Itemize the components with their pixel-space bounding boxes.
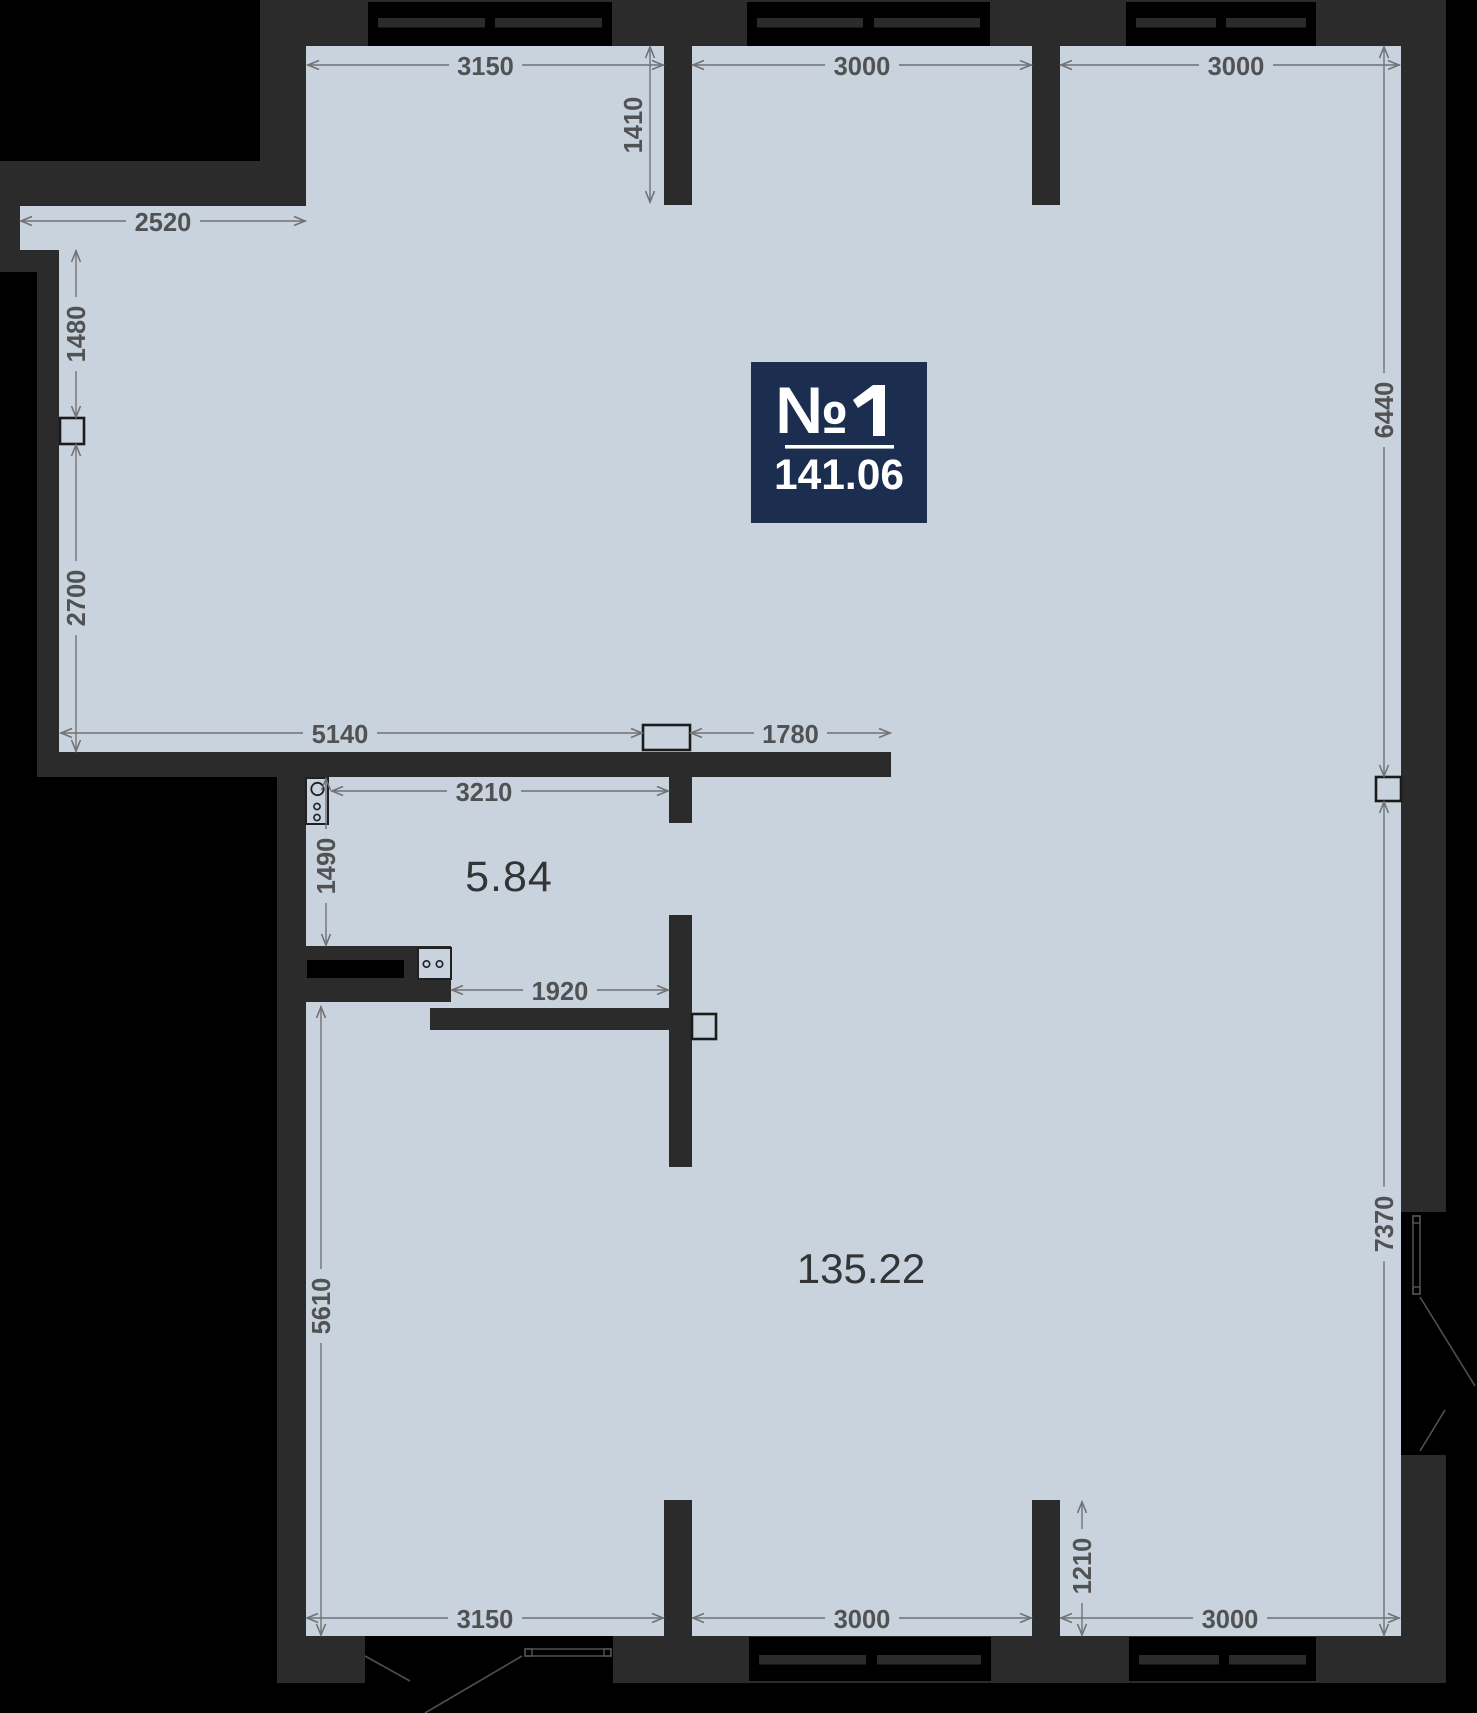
svg-text:3150: 3150 bbox=[457, 53, 514, 81]
svg-text:1920: 1920 bbox=[532, 978, 589, 1006]
svg-text:5610: 5610 bbox=[308, 1278, 336, 1335]
svg-text:5.84: 5.84 bbox=[465, 853, 553, 901]
svg-text:1210: 1210 bbox=[1069, 1538, 1097, 1595]
svg-text:1490: 1490 bbox=[313, 838, 341, 895]
svg-text:1780: 1780 bbox=[762, 721, 819, 749]
svg-text:6440: 6440 bbox=[1371, 382, 1399, 439]
svg-text:3000: 3000 bbox=[834, 53, 891, 81]
svg-text:№: № bbox=[775, 373, 849, 447]
svg-text:3000: 3000 bbox=[1202, 1606, 1259, 1634]
svg-text:2520: 2520 bbox=[135, 209, 192, 237]
svg-text:3000: 3000 bbox=[834, 1606, 891, 1634]
svg-text:135.22: 135.22 bbox=[797, 1245, 925, 1292]
svg-text:7370: 7370 bbox=[1371, 1196, 1399, 1253]
svg-text:3210: 3210 bbox=[456, 779, 513, 807]
svg-text:1410: 1410 bbox=[620, 97, 648, 154]
svg-text:3000: 3000 bbox=[1208, 53, 1265, 81]
svg-text:2700: 2700 bbox=[63, 570, 91, 627]
svg-text:1480: 1480 bbox=[63, 306, 91, 363]
svg-text:141.06: 141.06 bbox=[774, 452, 904, 499]
svg-text:3150: 3150 bbox=[457, 1606, 514, 1634]
svg-text:5140: 5140 bbox=[312, 721, 369, 749]
